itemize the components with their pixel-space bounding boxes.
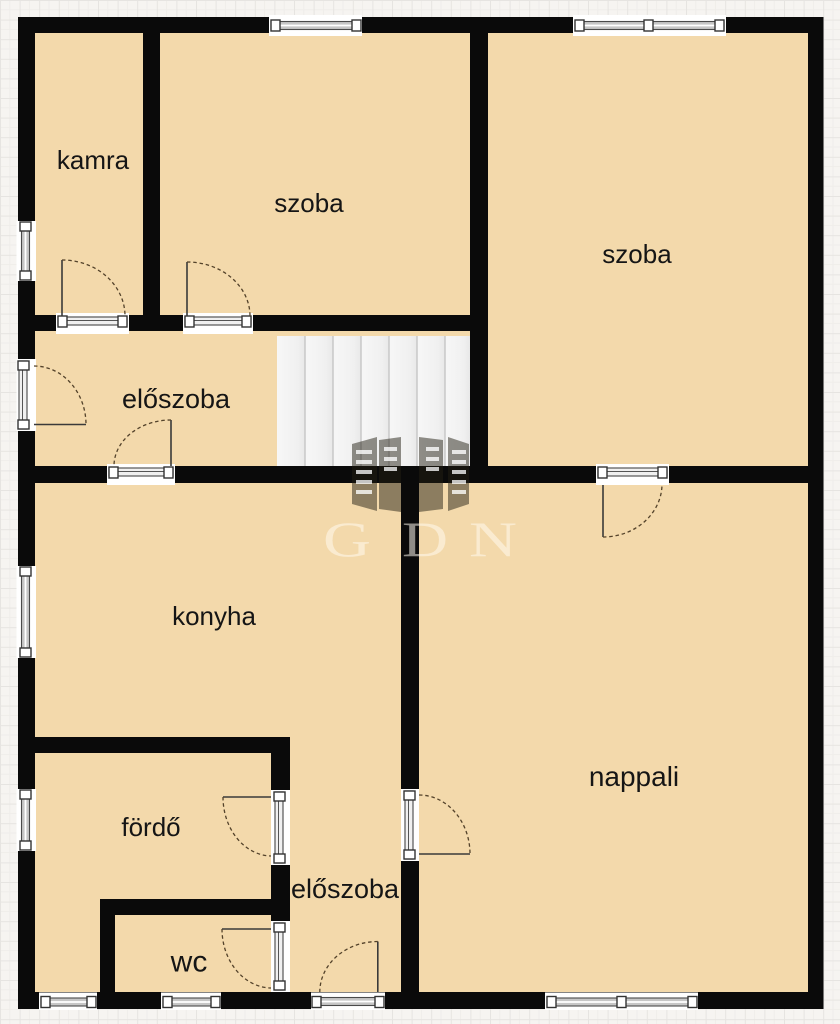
svg-text:fördő: fördő [121, 812, 180, 842]
svg-text:nappali: nappali [589, 761, 679, 792]
svg-text:G: G [323, 511, 371, 567]
svg-text:szoba: szoba [274, 188, 344, 218]
svg-text:kamra: kamra [57, 145, 130, 175]
svg-text:előszoba: előszoba [291, 874, 400, 904]
svg-text:konyha: konyha [172, 601, 256, 631]
svg-text:wc: wc [170, 946, 208, 979]
svg-text:előszoba: előszoba [122, 384, 231, 414]
svg-text:D: D [402, 511, 448, 567]
svg-text:N: N [469, 511, 517, 567]
svg-text:szoba: szoba [602, 239, 672, 269]
